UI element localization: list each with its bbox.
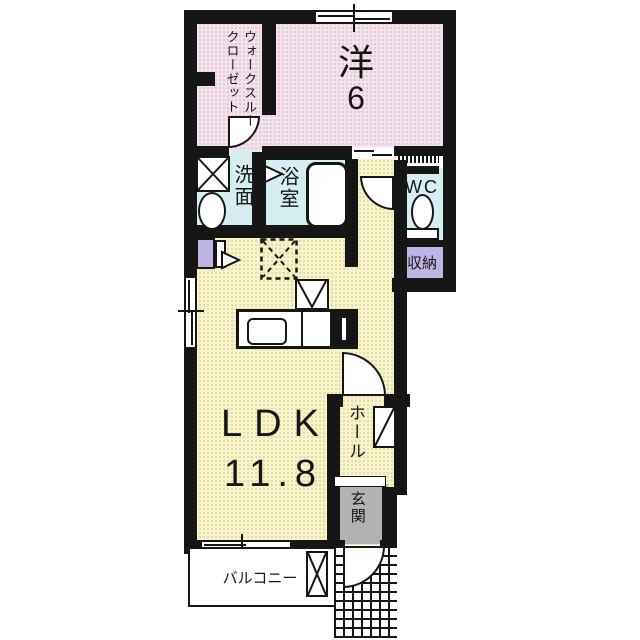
- ldk-label: LDK: [198, 402, 342, 448]
- wall-closet-divider: [262, 24, 276, 115]
- kitchen-counter: [236, 309, 358, 349]
- toilet-tank: [405, 228, 439, 240]
- counter-divider: [301, 312, 303, 346]
- balcony-label: バルコニー: [208, 568, 312, 590]
- refrigerator-space: [260, 238, 298, 280]
- wall-right-lower: [394, 285, 407, 495]
- bathtub: [306, 162, 348, 228]
- western-room-label: 洋 6: [326, 38, 386, 122]
- sliding-door-western: [352, 147, 394, 159]
- entrance-label: 玄関: [349, 491, 365, 525]
- window-top-tick: [353, 4, 355, 32]
- window-left-tick: [178, 310, 204, 312]
- ldk-size-label: 11.8: [198, 452, 342, 498]
- hall-label: ホール: [346, 404, 364, 461]
- wall-wc-storage-divider: [394, 240, 446, 247]
- closet-label-line1: ウォークスルー: [240, 30, 258, 145]
- bathroom-label: 浴室: [276, 166, 297, 210]
- washroom-storage-cabinet: [196, 238, 215, 269]
- washing-machine-pan: [196, 156, 230, 192]
- kitchen-sink: [247, 318, 287, 345]
- washroom-door-triangle: [221, 250, 241, 270]
- stove: [295, 279, 329, 310]
- wall-western-bottom: [262, 146, 352, 160]
- wall-western-bottom-right: [394, 146, 443, 156]
- wash-basin: [198, 192, 226, 230]
- wc-label: WC: [400, 176, 444, 198]
- walk-through-closet-label: ウォークスルー クローゼット: [212, 30, 258, 145]
- western-room-size: 6: [347, 82, 365, 116]
- western-room-kanji: 洋: [338, 44, 374, 82]
- washroom-label: 洗面: [231, 164, 252, 208]
- window-left: [186, 278, 195, 347]
- kitchen-side-panel: [330, 312, 358, 346]
- storage-label: 収納: [399, 247, 445, 280]
- toilet-bowl: [411, 194, 434, 230]
- closet-label-line2: クローゼット: [223, 30, 241, 145]
- shoe-cabinet: [373, 406, 396, 448]
- floor-plan: 洋 6 ウォークスルー クローゼット 洗面 浴室 WC 収納 LDK 11.8 …: [0, 0, 640, 640]
